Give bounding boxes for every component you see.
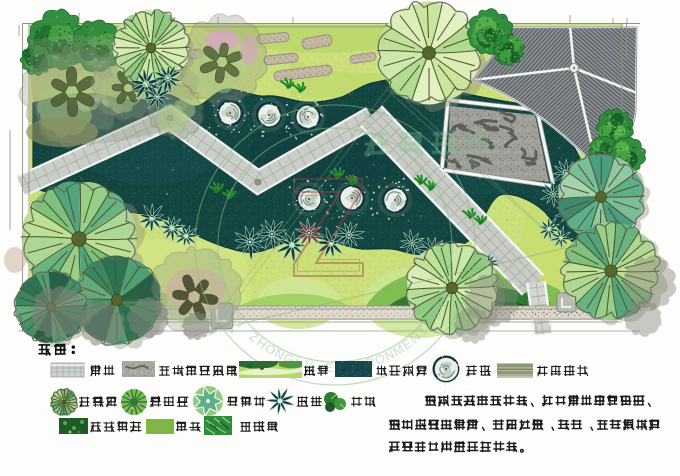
svg-text:S: S [205,251,220,261]
